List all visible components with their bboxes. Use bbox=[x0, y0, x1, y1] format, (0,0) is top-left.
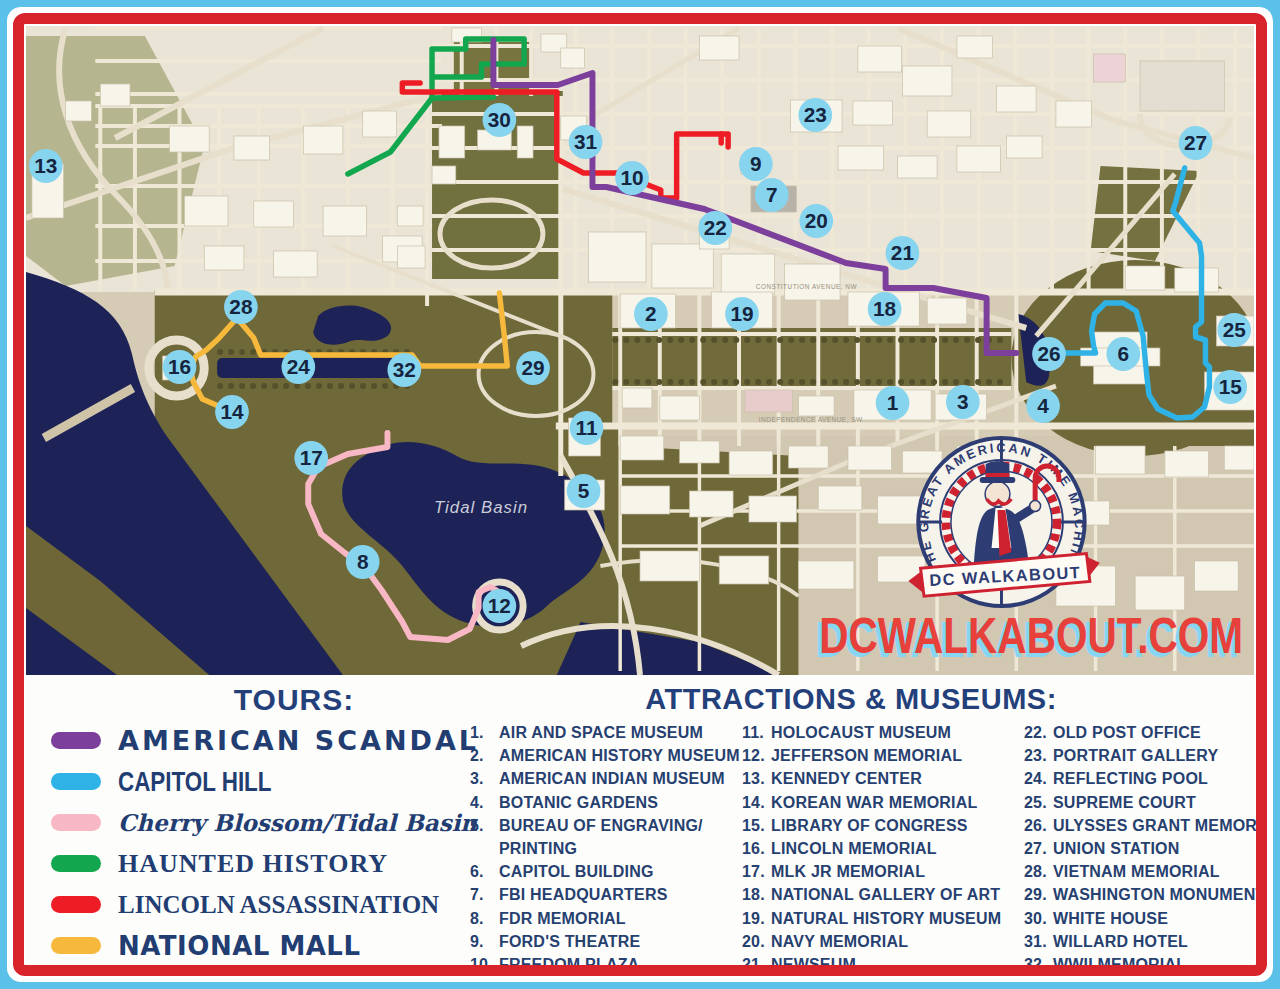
attraction-number: 20. bbox=[742, 930, 771, 953]
map-marker-31: 31 bbox=[569, 125, 603, 159]
attraction-item-3: 3.AMERICAN INDIAN MUSEUM bbox=[470, 767, 742, 790]
attraction-label: SUPREME COURT bbox=[1053, 791, 1267, 814]
attraction-number: 12. bbox=[742, 744, 771, 767]
map-marker-1: 1 bbox=[876, 386, 910, 420]
attraction-number: 21. bbox=[742, 953, 771, 976]
attraction-item-11: 11.HOLOCAUST MUSEUM bbox=[742, 721, 1024, 744]
attraction-label: FBI HEADQUARTERS bbox=[499, 883, 742, 906]
attraction-label: NATURAL HISTORY MUSEUM bbox=[771, 907, 1024, 930]
map-marker-12: 12 bbox=[483, 589, 517, 623]
map-marker-19: 19 bbox=[725, 297, 759, 331]
legend: TOURS: AMERICAN SCANDALCAPITOL HILLCherr… bbox=[26, 675, 1254, 976]
attraction-item-28: 28.VIETNAM MEMORIAL bbox=[1024, 860, 1267, 883]
attraction-item-4: 4.BOTANIC GARDENS bbox=[470, 791, 742, 814]
map-marker-6: 6 bbox=[1106, 337, 1140, 371]
map-marker-number: 28 bbox=[229, 295, 252, 318]
map-marker-4: 4 bbox=[1026, 389, 1060, 423]
map-marker-17: 17 bbox=[294, 441, 328, 475]
map-marker-number: 5 bbox=[578, 479, 590, 502]
tour-label-cherry-blossom: Cherry Blossom/Tidal Basin bbox=[118, 809, 477, 836]
map-marker-5: 5 bbox=[567, 474, 601, 508]
attraction-item-25: 25.SUPREME COURT bbox=[1024, 791, 1267, 814]
map-marker-28: 28 bbox=[224, 290, 258, 324]
map-marker-number: 20 bbox=[805, 209, 828, 232]
map-marker-18: 18 bbox=[868, 292, 902, 326]
map-marker-number: 4 bbox=[1037, 394, 1049, 417]
map-marker-number: 10 bbox=[621, 166, 644, 189]
attraction-item-15: 15.LIBRARY OF CONGRESS bbox=[742, 814, 1024, 837]
attraction-label: MLK JR MEMORIAL bbox=[771, 860, 1024, 883]
attraction-number: 28. bbox=[1024, 860, 1053, 883]
attraction-label: KOREAN WAR MEMORIAL bbox=[771, 791, 1024, 814]
attraction-item-14: 14.KOREAN WAR MEMORIAL bbox=[742, 791, 1024, 814]
attraction-item-18: 18.NATIONAL GALLERY OF ART bbox=[742, 883, 1024, 906]
attractions-column-3: 22.OLD POST OFFICE23.PORTRAIT GALLERY24.… bbox=[1024, 721, 1267, 976]
attraction-item-20: 20.NAVY MEMORIAL bbox=[742, 930, 1024, 953]
map-marker-7: 7 bbox=[755, 178, 789, 212]
map-marker-number: 16 bbox=[168, 355, 191, 378]
tour-label-american-scandal: AMERICAN SCANDAL bbox=[118, 725, 479, 756]
map-marker-25: 25 bbox=[1217, 313, 1251, 347]
poster-content: CONSTITUTION AVENUE, NW INDEPENDENCE AVE… bbox=[26, 26, 1254, 963]
tour-legend-item-american-scandal: AMERICAN SCANDAL bbox=[51, 724, 460, 757]
attraction-label: NAVY MEMORIAL bbox=[771, 930, 1024, 953]
map-marker-10: 10 bbox=[615, 161, 649, 195]
attraction-item-26: 26.ULYSSES GRANT MEMORIAL bbox=[1024, 814, 1267, 837]
attraction-label: NATIONAL GALLERY OF ART bbox=[771, 883, 1024, 906]
attraction-label: CAPITOL BUILDING bbox=[499, 860, 742, 883]
attraction-item-16: 16.LINCOLN MEMORIAL bbox=[742, 837, 1024, 860]
map-marker-16: 16 bbox=[163, 350, 197, 384]
independence-ave-label: INDEPENDENCE AVENUE, SW bbox=[759, 416, 863, 423]
attraction-item-23: 23.PORTRAIT GALLERY bbox=[1024, 744, 1267, 767]
attraction-number: 19. bbox=[742, 907, 771, 930]
attraction-label: AMERICAN HISTORY MUSEUM bbox=[499, 744, 742, 767]
attraction-label: FORD'S THEATRE bbox=[499, 930, 742, 953]
map-marker-number: 17 bbox=[300, 446, 323, 469]
attraction-item-32: 32.WWII MEMORIAL bbox=[1024, 953, 1267, 976]
map-marker-11: 11 bbox=[570, 411, 604, 445]
attraction-number: 9. bbox=[470, 930, 499, 953]
constitution-ave-label: CONSTITUTION AVENUE, NW bbox=[756, 283, 858, 290]
tour-label-national-mall: NATIONAL MALL bbox=[118, 931, 361, 961]
attraction-number: 1. bbox=[470, 721, 499, 744]
map-marker-number: 6 bbox=[1117, 342, 1129, 365]
map-marker-number: 3 bbox=[957, 390, 969, 413]
map-marker-number: 25 bbox=[1223, 318, 1246, 341]
tour-label-lincoln-assassination: LINCOLN ASSASSINATION bbox=[118, 891, 439, 919]
website-url: DCWALKABOUT.COM DCWALKABOUT.COM bbox=[815, 608, 1243, 668]
attraction-label: REFLECTING POOL bbox=[1053, 767, 1267, 790]
attraction-item-17: 17.MLK JR MEMORIAL bbox=[742, 860, 1024, 883]
attraction-item-31: 31.WILLARD HOTEL bbox=[1024, 930, 1267, 953]
attraction-label: BOTANIC GARDENS bbox=[499, 791, 742, 814]
attraction-number: 15. bbox=[742, 814, 771, 837]
map-marker-20: 20 bbox=[799, 204, 833, 238]
attraction-item-6: 6.CAPITOL BUILDING bbox=[470, 860, 742, 883]
attraction-number: 23. bbox=[1024, 744, 1053, 767]
map-marker-15: 15 bbox=[1213, 370, 1247, 404]
map-marker-23: 23 bbox=[798, 98, 832, 132]
attraction-item-30: 30.WHITE HOUSE bbox=[1024, 907, 1267, 930]
map-marker-number: 19 bbox=[730, 302, 753, 325]
tidal-basin-label: Tidal Basin bbox=[434, 498, 528, 517]
tour-label-capitol-hill: CAPITOL HILL bbox=[118, 766, 271, 798]
map-marker-9: 9 bbox=[739, 147, 773, 181]
map-marker-26: 26 bbox=[1032, 337, 1066, 371]
attraction-label: WILLARD HOTEL bbox=[1053, 930, 1267, 953]
attraction-label: KENNEDY CENTER bbox=[771, 767, 1024, 790]
attraction-number: 16. bbox=[742, 837, 771, 860]
attraction-item-24: 24.REFLECTING POOL bbox=[1024, 767, 1267, 790]
map-marker-number: 31 bbox=[574, 130, 597, 153]
attraction-item-22: 22.OLD POST OFFICE bbox=[1024, 721, 1267, 744]
attraction-number: 30. bbox=[1024, 907, 1053, 930]
attraction-number: 13. bbox=[742, 767, 771, 790]
map-marker-number: 32 bbox=[393, 358, 416, 381]
attraction-label: AIR AND SPACE MUSEUM bbox=[499, 721, 742, 744]
attraction-label: WHITE HOUSE bbox=[1053, 907, 1267, 930]
attraction-label: PORTRAIT GALLERY bbox=[1053, 744, 1267, 767]
attraction-number: 2. bbox=[470, 744, 499, 767]
attraction-number: 27. bbox=[1024, 837, 1053, 860]
map-marker-number: 24 bbox=[287, 355, 310, 378]
attraction-label: VIETNAM MEMORIAL bbox=[1053, 860, 1267, 883]
attraction-item-13: 13.KENNEDY CENTER bbox=[742, 767, 1024, 790]
map-marker-number: 13 bbox=[34, 154, 57, 177]
map-marker-number: 8 bbox=[357, 550, 369, 573]
map-marker-29: 29 bbox=[516, 351, 550, 385]
attraction-item-7: 7.FBI HEADQUARTERS bbox=[470, 883, 742, 906]
tours-panel: TOURS: AMERICAN SCANDALCAPITOL HILLCherr… bbox=[26, 677, 460, 976]
attraction-label: WASHINGTON MONUMENT bbox=[1053, 883, 1267, 906]
attraction-label: NEWSEUM bbox=[771, 953, 1024, 976]
dc-map: CONSTITUTION AVENUE, NW INDEPENDENCE AVE… bbox=[26, 26, 1254, 675]
attraction-label: LIBRARY OF CONGRESS bbox=[771, 814, 1024, 837]
attraction-item-8: 8.FDR MEMORIAL bbox=[470, 907, 742, 930]
red-border: CONSTITUTION AVENUE, NW INDEPENDENCE AVE… bbox=[13, 13, 1267, 976]
attraction-number: 18. bbox=[742, 883, 771, 906]
map-marker-number: 22 bbox=[704, 216, 727, 239]
attraction-label: AMERICAN INDIAN MUSEUM bbox=[499, 767, 742, 790]
map-marker-30: 30 bbox=[483, 103, 517, 137]
map-marker-21: 21 bbox=[886, 236, 920, 270]
tour-color-swatch-national-mall bbox=[51, 937, 101, 954]
map-marker-number: 27 bbox=[1184, 131, 1207, 154]
attraction-number: 6. bbox=[470, 860, 499, 883]
attraction-label: JEFFERSON MEMORIAL bbox=[771, 744, 1024, 767]
attraction-number: 3. bbox=[470, 767, 499, 790]
map-marker-number: 1 bbox=[887, 391, 899, 414]
attraction-label: UNION STATION bbox=[1053, 837, 1267, 860]
attraction-number: 7. bbox=[470, 883, 499, 906]
map-marker-13: 13 bbox=[29, 149, 63, 183]
attraction-item-2: 2.AMERICAN HISTORY MUSEUM bbox=[470, 744, 742, 767]
map-marker-27: 27 bbox=[1179, 126, 1213, 160]
map-marker-number: 12 bbox=[488, 594, 511, 617]
attraction-number: 8. bbox=[470, 907, 499, 930]
attraction-number: 11. bbox=[742, 721, 771, 744]
map-marker-number: 23 bbox=[804, 103, 827, 126]
map-marker-2: 2 bbox=[634, 297, 668, 331]
map-marker-24: 24 bbox=[282, 350, 316, 384]
map-marker-8: 8 bbox=[346, 545, 380, 579]
attraction-number: 24. bbox=[1024, 767, 1053, 790]
attraction-item-29: 29.WASHINGTON MONUMENT bbox=[1024, 883, 1267, 906]
tour-color-swatch-capitol-hill bbox=[51, 773, 101, 790]
attractions-panel: ATTRACTIONS & MUSEUMS: 1.AIR AND SPACE M… bbox=[460, 677, 1267, 976]
map-marker-32: 32 bbox=[387, 353, 421, 387]
map-marker-14: 14 bbox=[215, 395, 249, 429]
attraction-number: 31. bbox=[1024, 930, 1053, 953]
map-marker-number: 15 bbox=[1219, 375, 1242, 398]
website-url-text: DCWALKABOUT.COM bbox=[819, 608, 1243, 664]
attraction-number: 32. bbox=[1024, 953, 1053, 976]
attraction-item-1: 1.AIR AND SPACE MUSEUM bbox=[470, 721, 742, 744]
map-marker-number: 18 bbox=[873, 297, 896, 320]
attraction-label: WWII MEMORIAL bbox=[1053, 953, 1267, 976]
map-marker-3: 3 bbox=[946, 385, 980, 419]
map-marker-number: 21 bbox=[891, 241, 914, 264]
tour-color-swatch-haunted-history bbox=[51, 855, 101, 872]
attraction-number: 22. bbox=[1024, 721, 1053, 744]
attractions-heading: ATTRACTIONS & MUSEUMS: bbox=[438, 683, 1264, 716]
tour-legend-item-capitol-hill: CAPITOL HILL bbox=[51, 765, 460, 798]
attraction-item-12: 12.JEFFERSON MEMORIAL bbox=[742, 744, 1024, 767]
map-marker-number: 11 bbox=[576, 416, 598, 439]
attractions-column-1: 1.AIR AND SPACE MUSEUM2.AMERICAN HISTORY… bbox=[470, 721, 742, 976]
map-marker-number: 14 bbox=[220, 400, 243, 423]
attraction-label: OLD POST OFFICE bbox=[1053, 721, 1267, 744]
attraction-number: 29. bbox=[1024, 883, 1053, 906]
attractions-column-2: 11.HOLOCAUST MUSEUM12.JEFFERSON MEMORIAL… bbox=[742, 721, 1024, 976]
map-marker-number: 7 bbox=[766, 183, 778, 206]
map-marker-number: 29 bbox=[521, 356, 544, 379]
attraction-item-21: 21.NEWSEUM bbox=[742, 953, 1024, 976]
tour-color-swatch-american-scandal bbox=[51, 732, 101, 749]
tours-list: AMERICAN SCANDALCAPITOL HILLCherry Bloss… bbox=[32, 724, 460, 962]
tour-legend-item-haunted-history: HAUNTED HISTORY bbox=[51, 847, 460, 880]
attraction-label: HOLOCAUST MUSEUM bbox=[771, 721, 1024, 744]
tour-legend-item-national-mall: NATIONAL MALL bbox=[51, 929, 460, 962]
map-marker-number: 9 bbox=[750, 152, 762, 175]
map-canvas: CONSTITUTION AVENUE, NW INDEPENDENCE AVE… bbox=[26, 26, 1254, 675]
white-border: CONSTITUTION AVENUE, NW INDEPENDENCE AVE… bbox=[7, 7, 1273, 982]
attraction-label: LINCOLN MEMORIAL bbox=[771, 837, 1024, 860]
attraction-label: FDR MEMORIAL bbox=[499, 907, 742, 930]
attraction-number: 4. bbox=[470, 791, 499, 814]
tour-legend-item-cherry-blossom: Cherry Blossom/Tidal Basin bbox=[51, 806, 460, 839]
map-marker-number: 2 bbox=[645, 302, 657, 325]
attraction-number: 17. bbox=[742, 860, 771, 883]
attraction-label: FREEDOM PLAZA bbox=[499, 953, 742, 976]
attraction-item-27: 27.UNION STATION bbox=[1024, 837, 1267, 860]
attraction-item-5: 5.BUREAU OF ENGRAVING/ PRINTING bbox=[470, 814, 742, 860]
tour-label-haunted-history: HAUNTED HISTORY bbox=[118, 849, 388, 879]
attraction-number: 10. bbox=[470, 953, 499, 976]
attraction-label: ULYSSES GRANT MEMORIAL bbox=[1053, 814, 1267, 837]
tour-color-swatch-lincoln-assassination bbox=[51, 896, 101, 913]
attraction-number: 26. bbox=[1024, 814, 1053, 837]
attraction-label: BUREAU OF ENGRAVING/ PRINTING bbox=[499, 814, 742, 860]
tour-legend-item-lincoln-assassination: LINCOLN ASSASSINATION bbox=[51, 888, 460, 921]
attraction-item-19: 19.NATURAL HISTORY MUSEUM bbox=[742, 907, 1024, 930]
tour-color-swatch-cherry-blossom bbox=[51, 814, 101, 831]
map-marker-number: 26 bbox=[1037, 342, 1060, 365]
attractions-columns: 1.AIR AND SPACE MUSEUM2.AMERICAN HISTORY… bbox=[460, 721, 1267, 976]
attraction-number: 14. bbox=[742, 791, 771, 814]
attraction-number: 5. bbox=[470, 814, 499, 860]
attraction-number: 25. bbox=[1024, 791, 1053, 814]
map-marker-number: 30 bbox=[488, 108, 511, 131]
map-marker-22: 22 bbox=[698, 211, 732, 245]
attraction-item-9: 9.FORD'S THEATRE bbox=[470, 930, 742, 953]
attraction-item-10: 10.FREEDOM PLAZA bbox=[470, 953, 742, 976]
outer-cyan-border: CONSTITUTION AVENUE, NW INDEPENDENCE AVE… bbox=[0, 0, 1280, 989]
